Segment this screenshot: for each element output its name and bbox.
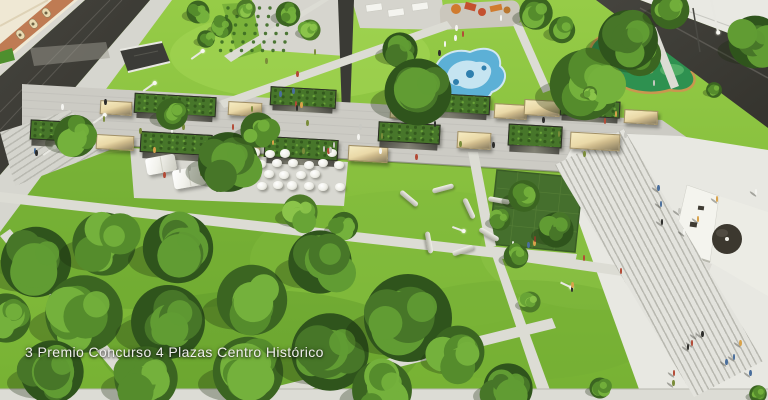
person xyxy=(725,359,728,365)
person xyxy=(749,370,752,376)
person xyxy=(660,201,663,207)
person xyxy=(279,91,282,97)
person xyxy=(323,146,326,152)
person xyxy=(153,147,156,153)
person xyxy=(634,53,637,59)
person xyxy=(381,133,384,139)
person xyxy=(216,186,219,192)
person xyxy=(357,134,360,140)
person xyxy=(739,340,742,346)
person xyxy=(683,229,686,235)
person xyxy=(163,172,166,178)
person xyxy=(661,219,664,225)
person xyxy=(61,104,64,110)
person xyxy=(678,208,681,214)
person xyxy=(583,255,586,261)
person xyxy=(176,110,179,116)
person xyxy=(716,196,719,202)
person xyxy=(296,71,299,77)
person xyxy=(604,118,607,124)
person xyxy=(620,268,623,274)
person xyxy=(342,146,345,152)
person xyxy=(558,131,561,137)
person xyxy=(492,142,495,148)
person xyxy=(302,148,305,154)
person xyxy=(232,124,235,130)
person xyxy=(333,142,336,148)
person xyxy=(438,50,441,56)
person xyxy=(462,31,465,37)
person xyxy=(512,241,515,247)
person xyxy=(179,167,182,173)
person xyxy=(459,141,462,147)
person xyxy=(657,185,660,191)
person xyxy=(542,117,545,123)
person xyxy=(455,25,458,31)
person xyxy=(139,128,142,134)
person xyxy=(296,105,299,111)
person xyxy=(542,226,545,232)
person xyxy=(415,154,418,160)
person xyxy=(247,116,250,122)
person xyxy=(314,49,317,55)
person xyxy=(500,15,503,21)
aerial-park-rendering: 3 Premio Concurso 4 Plazas Centro Histór… xyxy=(0,0,768,400)
person xyxy=(265,58,268,64)
person xyxy=(182,124,185,130)
person xyxy=(615,111,618,117)
person xyxy=(188,165,191,171)
caption: 3 Premio Concurso 4 Plazas Centro Histór… xyxy=(25,344,324,360)
person xyxy=(306,120,309,126)
person xyxy=(593,101,596,107)
person xyxy=(583,110,586,116)
person xyxy=(434,121,437,127)
person xyxy=(314,34,317,40)
person xyxy=(571,282,574,288)
person xyxy=(653,80,656,86)
person xyxy=(697,216,700,222)
person xyxy=(329,147,332,153)
person xyxy=(733,354,736,360)
person xyxy=(292,88,295,94)
person xyxy=(673,370,676,376)
person xyxy=(251,106,254,112)
person xyxy=(359,124,362,130)
person xyxy=(200,170,203,176)
caption-text: 3 Premio Concurso 4 Plazas Centro Histór… xyxy=(25,344,324,360)
person xyxy=(527,242,530,248)
person xyxy=(171,127,174,133)
person xyxy=(454,35,457,41)
person xyxy=(672,380,675,386)
person xyxy=(755,189,758,195)
person xyxy=(200,148,203,154)
person xyxy=(444,41,447,47)
person xyxy=(379,148,382,154)
person xyxy=(103,116,106,122)
person xyxy=(35,150,38,156)
person xyxy=(583,151,586,157)
person xyxy=(82,143,85,149)
person xyxy=(272,139,275,145)
person xyxy=(656,57,659,63)
person xyxy=(300,102,303,108)
person xyxy=(254,127,257,133)
person xyxy=(655,48,658,54)
person xyxy=(624,132,627,138)
person xyxy=(104,99,107,105)
person xyxy=(701,331,704,337)
person xyxy=(534,236,537,242)
person xyxy=(621,74,624,80)
people-layer xyxy=(0,0,768,400)
person xyxy=(691,340,694,346)
